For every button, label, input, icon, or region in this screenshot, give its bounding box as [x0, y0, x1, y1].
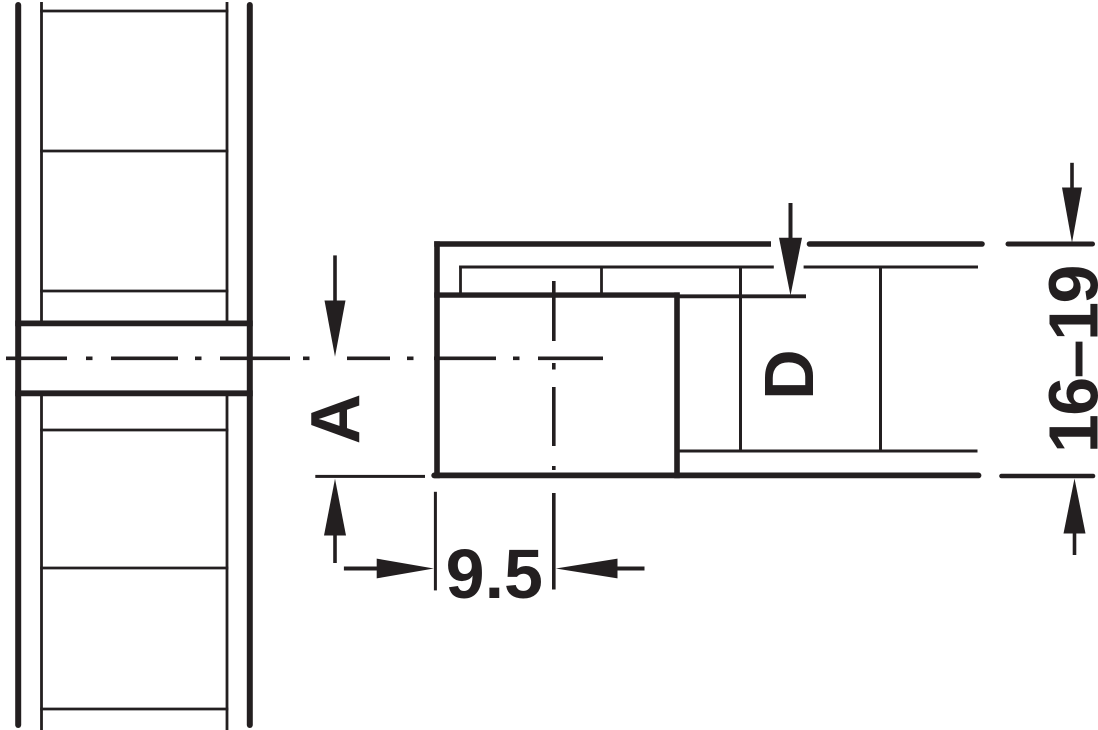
svg-text:9.5: 9.5: [446, 535, 543, 613]
svg-text:A: A: [297, 394, 375, 445]
svg-text:D: D: [750, 349, 828, 400]
svg-text:16–19: 16–19: [1035, 266, 1098, 453]
